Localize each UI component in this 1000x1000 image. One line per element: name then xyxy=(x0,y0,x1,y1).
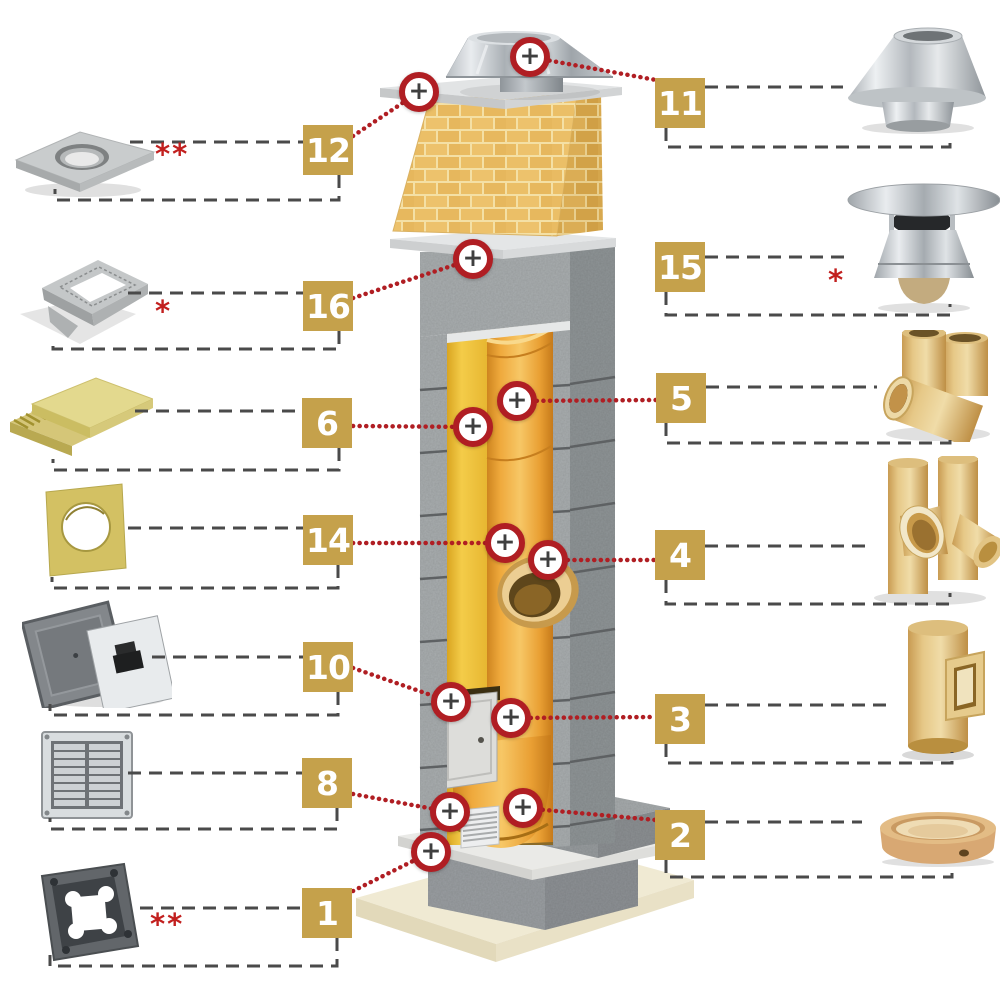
part-label-p10: 10 xyxy=(303,642,353,692)
item-image-chimney-cowl xyxy=(836,22,994,134)
plus-icon: + xyxy=(409,78,430,103)
part-number: 2 xyxy=(669,816,691,855)
plus-icon: + xyxy=(463,413,484,438)
part-number: 11 xyxy=(658,84,702,123)
asterisk-note-p16: * xyxy=(155,297,172,326)
plus-icon: + xyxy=(463,245,484,270)
plus-marker-p6[interactable]: + xyxy=(453,407,493,447)
plus-marker-p11[interactable]: + xyxy=(510,37,550,77)
part-label-p3: 3 xyxy=(655,694,705,744)
part-number: 4 xyxy=(669,536,691,575)
item-image-cover-slab xyxy=(8,126,158,200)
plus-marker-p10[interactable]: + xyxy=(431,682,471,722)
part-number: 14 xyxy=(306,521,350,560)
part-label-p12: 12 xyxy=(303,125,353,175)
part-label-p6: 6 xyxy=(302,398,352,448)
part-number: 10 xyxy=(306,648,350,687)
asterisk-note-p1: ** xyxy=(150,910,184,939)
plus-marker-p3[interactable]: + xyxy=(491,698,531,738)
item-image-chimney-block xyxy=(34,860,144,964)
plus-icon: + xyxy=(501,704,522,729)
plus-marker-p16[interactable]: + xyxy=(453,239,493,279)
part-number: 12 xyxy=(306,131,350,170)
part-label-p14: 14 xyxy=(303,515,353,565)
item-image-ceramic-pipes xyxy=(876,330,1000,442)
plus-icon: + xyxy=(440,798,461,823)
item-image-insulation-ring xyxy=(44,482,128,578)
part-label-p2: 2 xyxy=(655,810,705,860)
item-image-rain-cap xyxy=(842,170,1000,315)
item-image-ventilation-grille xyxy=(40,730,134,822)
part-label-p5: 5 xyxy=(656,373,706,423)
part-label-p1: 1 xyxy=(302,888,352,938)
plus-marker-p2[interactable]: + xyxy=(503,788,543,828)
plus-marker-p8[interactable]: + xyxy=(430,792,470,832)
item-image-ceramic-tee xyxy=(860,456,1000,606)
part-number: 1 xyxy=(316,894,338,933)
item-image-ceramic-inspection-pipe xyxy=(894,618,988,763)
part-number: 8 xyxy=(316,764,338,803)
part-number: 3 xyxy=(669,700,691,739)
asterisk-note-p12: ** xyxy=(155,140,189,169)
plus-icon: + xyxy=(421,838,442,863)
plus-marker-p14[interactable]: + xyxy=(485,523,525,563)
part-number: 6 xyxy=(316,404,338,443)
part-label-p8: 8 xyxy=(302,758,352,808)
plus-marker-p4[interactable]: + xyxy=(528,540,568,580)
plus-icon: + xyxy=(441,688,462,713)
plus-icon: + xyxy=(538,546,559,571)
brick-head xyxy=(393,93,603,236)
plus-icon: + xyxy=(513,794,534,819)
item-image-inspection-door xyxy=(22,596,172,708)
part-number: 16 xyxy=(306,287,350,326)
part-number: 15 xyxy=(658,248,702,287)
part-label-p15: 15 xyxy=(655,242,705,292)
part-number: 5 xyxy=(670,379,692,418)
plus-marker-p12[interactable]: + xyxy=(399,72,439,112)
chimney-system-diagram: + + + + + + + + + + + + 12 16 6 14 10 8 … xyxy=(0,0,1000,1000)
asterisk-note-p15: * xyxy=(828,266,845,295)
plus-icon: + xyxy=(520,43,541,68)
plus-icon: + xyxy=(495,529,516,554)
item-image-insulation-boards xyxy=(8,376,153,468)
part-label-p16: 16 xyxy=(303,281,353,331)
plus-icon: + xyxy=(507,387,528,412)
part-label-p11: 11 xyxy=(655,78,705,128)
item-image-condensate-bowl xyxy=(876,806,1000,868)
item-image-cone-form xyxy=(18,252,148,352)
plus-marker-p1[interactable]: + xyxy=(411,832,451,872)
part-label-p4: 4 xyxy=(655,530,705,580)
plus-marker-p5[interactable]: + xyxy=(497,381,537,421)
